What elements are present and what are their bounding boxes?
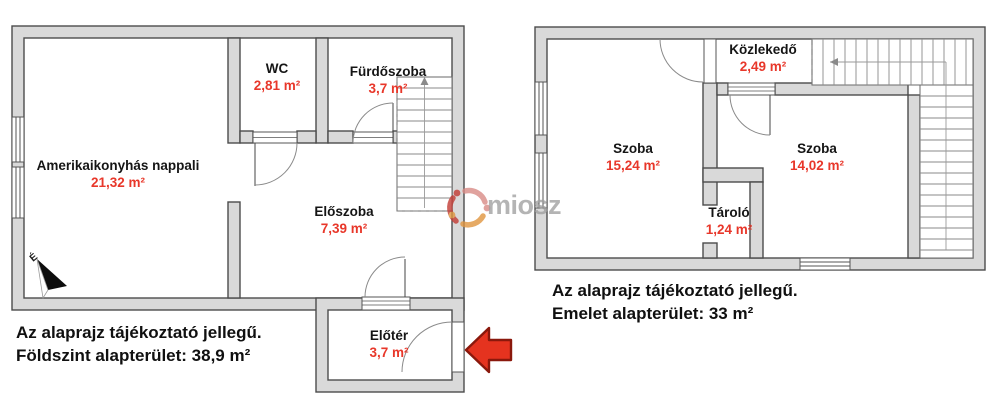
room-area: 15,24 m² (606, 157, 660, 174)
room-label-nappali: Amerikaikonyhás nappali 21,32 m² (37, 157, 200, 191)
room-area: 3,7 m² (350, 80, 427, 97)
room-label-furdoszoba: Fürdőszoba 3,7 m² (350, 63, 427, 97)
entrance-arrow-icon (466, 328, 511, 372)
room-area: 14,02 m² (790, 157, 844, 174)
room-label-eloszoba: Előszoba 7,39 m² (314, 203, 373, 237)
room-label-wc: WC 2,81 m² (254, 60, 301, 94)
caption-line: Emelet alapterület: 33 m² (552, 303, 798, 326)
room-area: 1,24 m² (706, 221, 753, 238)
room-name: Szoba (790, 140, 844, 157)
caption-line: Földszint alapterület: 38,9 m² (16, 345, 262, 368)
room-name: WC (254, 60, 301, 77)
room-name: Amerikaikonyhás nappali (37, 157, 200, 174)
room-name: Szoba (606, 140, 660, 157)
room-name: Előtér (369, 327, 408, 344)
room-label-szoba-1: Szoba 15,24 m² (606, 140, 660, 174)
room-area: 3,7 m² (369, 344, 408, 361)
room-name: Közlekedő (729, 41, 797, 58)
room-area: 2,49 m² (729, 58, 797, 75)
caption-line: Az alaprajz tájékoztató jellegű. (552, 280, 798, 303)
caption-line: Az alaprajz tájékoztató jellegű. (16, 322, 262, 345)
floorplan-image: É (0, 0, 1000, 417)
upper-floor-caption: Az alaprajz tájékoztató jellegű. Emelet … (552, 280, 798, 326)
room-name: Előszoba (314, 203, 373, 220)
watermark-text: miosz (487, 190, 561, 221)
room-name: Fürdőszoba (350, 63, 427, 80)
room-label-kozlekedo: Közlekedő 2,49 m² (729, 41, 797, 75)
room-area: 21,32 m² (37, 174, 200, 191)
ground-floor-windows (12, 117, 24, 218)
ground-floor-stairs (397, 77, 452, 211)
room-name: Tároló (706, 204, 753, 221)
room-label-eloter: Előtér 3,7 m² (369, 327, 408, 361)
ground-floor-caption: Az alaprajz tájékoztató jellegű. Földszi… (16, 322, 262, 368)
room-area: 7,39 m² (314, 220, 373, 237)
room-area: 2,81 m² (254, 77, 301, 94)
room-label-szoba-2: Szoba 14,02 m² (790, 140, 844, 174)
room-label-tarolo: Tároló 1,24 m² (706, 204, 753, 238)
